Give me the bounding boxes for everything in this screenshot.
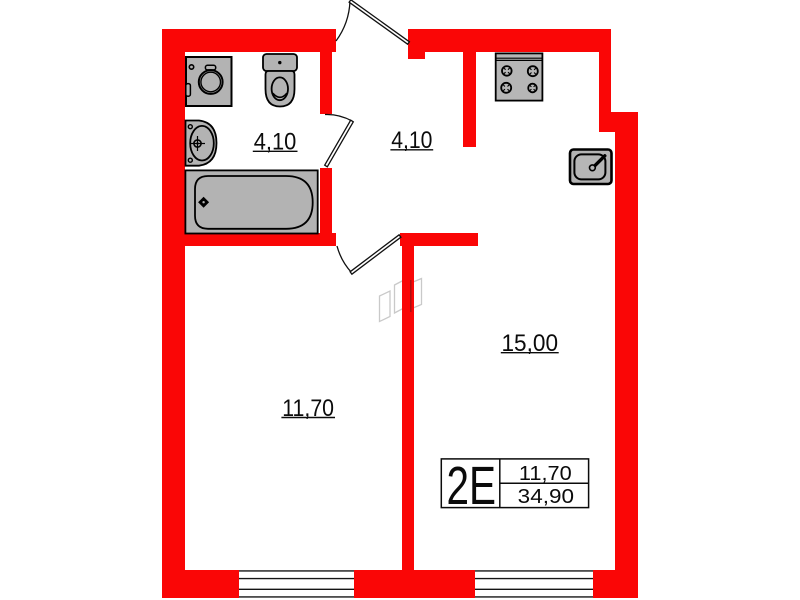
svg-text:34,90: 34,90 (518, 486, 574, 508)
svg-text:2E: 2E (447, 456, 497, 516)
svg-text:11,70: 11,70 (519, 463, 572, 485)
